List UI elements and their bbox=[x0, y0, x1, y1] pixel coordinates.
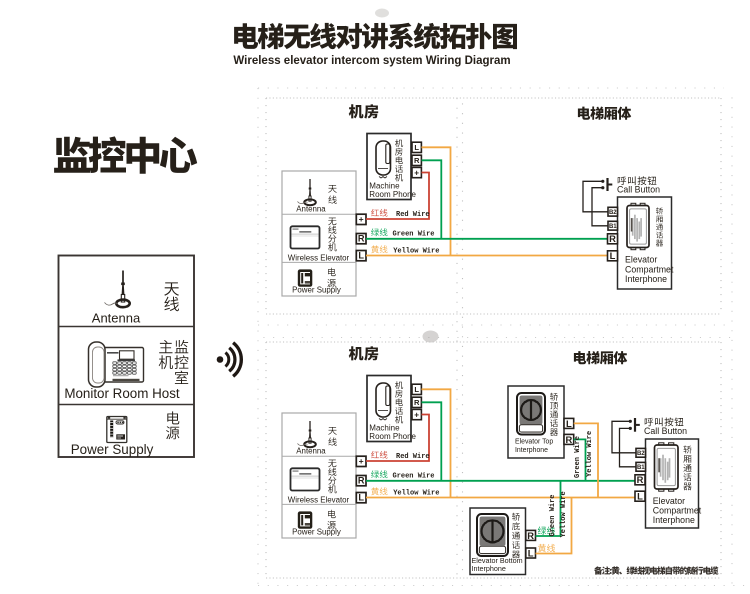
svg-text:Elevator: Elevator bbox=[653, 496, 685, 506]
svg-text:Room Phone: Room Phone bbox=[369, 190, 416, 199]
svg-text:R: R bbox=[414, 398, 420, 407]
svg-text:Elevator: Elevator bbox=[625, 255, 657, 265]
svg-text:Green Wire: Green Wire bbox=[393, 473, 435, 481]
svg-text:L: L bbox=[414, 385, 419, 394]
svg-text:Monitor Room Host: Monitor Room Host bbox=[64, 386, 180, 401]
svg-text:Room Phone: Room Phone bbox=[369, 432, 416, 441]
svg-text:L: L bbox=[637, 491, 643, 502]
svg-text:Green Wire: Green Wire bbox=[393, 231, 435, 239]
svg-text:Interphone: Interphone bbox=[472, 564, 506, 573]
svg-text:L: L bbox=[566, 418, 572, 429]
svg-text:R: R bbox=[566, 434, 573, 445]
svg-text:L: L bbox=[358, 251, 364, 261]
svg-text:Wireless Elevator: Wireless Elevator bbox=[288, 495, 350, 504]
svg-text:Interphone: Interphone bbox=[515, 447, 548, 454]
svg-text:Interphone: Interphone bbox=[653, 515, 695, 525]
svg-text:Wireless Elevator: Wireless Elevator bbox=[288, 253, 350, 262]
svg-text:Green Wire: Green Wire bbox=[549, 494, 557, 536]
svg-text:Antenna: Antenna bbox=[92, 311, 141, 326]
svg-text:Interphone: Interphone bbox=[625, 274, 667, 284]
svg-text:Green Wire: Green Wire bbox=[574, 436, 582, 478]
svg-text:B2: B2 bbox=[637, 451, 645, 457]
svg-text:Yellow Wire: Yellow Wire bbox=[393, 490, 439, 498]
svg-text:Power Supply: Power Supply bbox=[292, 528, 341, 537]
svg-text:Call Button: Call Button bbox=[617, 185, 660, 195]
svg-text:Antenna: Antenna bbox=[296, 204, 326, 213]
svg-text:L: L bbox=[610, 250, 616, 261]
svg-text:R: R bbox=[414, 156, 420, 165]
svg-text:L: L bbox=[414, 143, 419, 152]
svg-text:Compartmet: Compartmet bbox=[625, 264, 674, 274]
svg-text:+: + bbox=[359, 456, 364, 466]
svg-text:Power Supply: Power Supply bbox=[71, 442, 154, 457]
svg-text:L: L bbox=[358, 493, 364, 503]
svg-text:B2: B2 bbox=[609, 210, 617, 216]
svg-text:+: + bbox=[414, 168, 419, 177]
svg-text:B1: B1 bbox=[609, 224, 617, 230]
svg-text:Yellow Wire: Yellow Wire bbox=[393, 248, 439, 256]
svg-text:B1: B1 bbox=[637, 465, 645, 471]
svg-text:+: + bbox=[414, 410, 419, 419]
svg-text:R: R bbox=[609, 233, 616, 244]
svg-text:Antenna: Antenna bbox=[296, 446, 326, 455]
svg-text:Call Button: Call Button bbox=[644, 426, 687, 436]
svg-text:R: R bbox=[358, 476, 365, 486]
svg-text:Elevator Top: Elevator Top bbox=[515, 439, 553, 446]
svg-text:Yellow Wire: Yellow Wire bbox=[560, 491, 568, 537]
svg-text:R: R bbox=[637, 474, 644, 485]
svg-text:R: R bbox=[527, 530, 534, 541]
svg-text:Wireless elevator intercom sys: Wireless elevator intercom system Wiring… bbox=[233, 55, 510, 67]
svg-text:Red Wire: Red Wire bbox=[396, 453, 430, 461]
svg-text:L: L bbox=[528, 547, 534, 558]
svg-text:R: R bbox=[358, 234, 365, 244]
svg-text:+: + bbox=[359, 214, 364, 224]
svg-text:Red Wire: Red Wire bbox=[396, 211, 430, 219]
svg-text:Yellow Wire: Yellow Wire bbox=[586, 431, 594, 477]
svg-text:Power Supply: Power Supply bbox=[292, 286, 341, 295]
